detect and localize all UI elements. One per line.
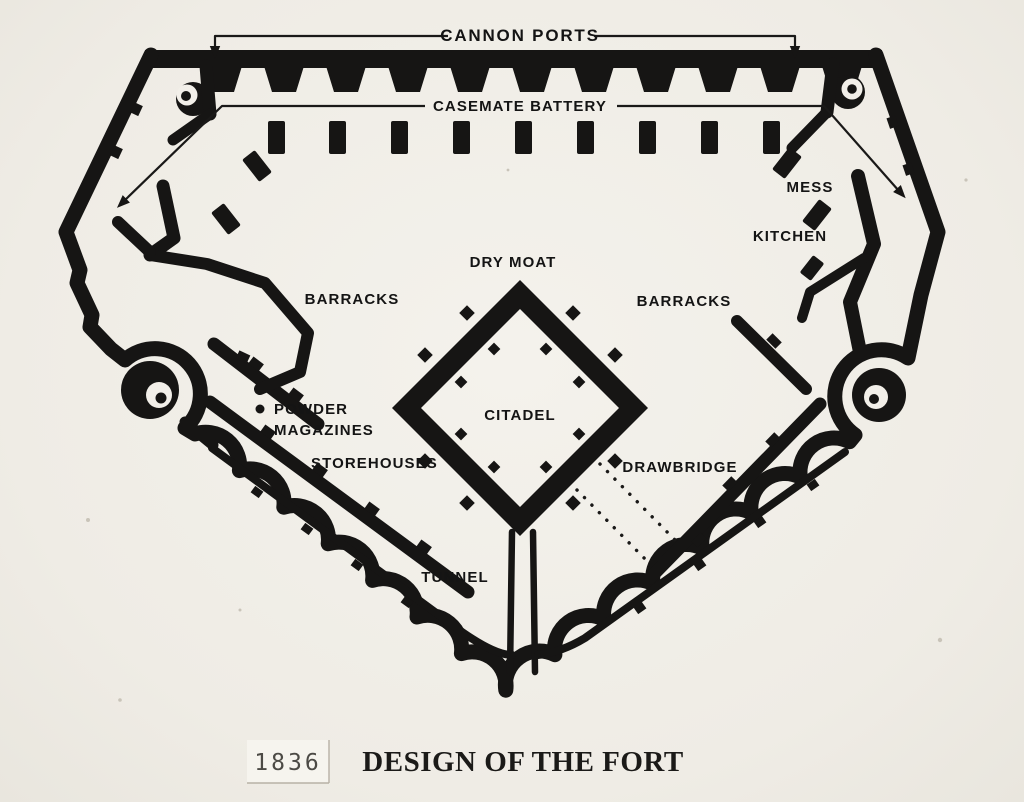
label-mess: MESS bbox=[787, 179, 834, 196]
label-powder-magazines-line1: POWDER bbox=[274, 401, 348, 418]
inner-wall-east bbox=[538, 452, 845, 655]
casemate-pier bbox=[639, 121, 656, 154]
fort-plan-drawing: CANNON PORTS CASEMATE BATTERY MESS KITCH… bbox=[0, 0, 1024, 802]
gun-position-dot bbox=[181, 91, 191, 101]
casemate-pier bbox=[453, 121, 470, 154]
casemate-pier bbox=[701, 121, 718, 154]
caption-title: DESIGN OF THE FORT bbox=[362, 746, 683, 778]
label-barracks-east: BARRACKS bbox=[637, 293, 732, 310]
casemate-pier bbox=[800, 255, 825, 281]
casemate-pier bbox=[802, 199, 832, 231]
label-storehouses: STOREHOUSES bbox=[311, 455, 438, 472]
casemate-pier bbox=[242, 150, 272, 182]
fort-diagram-page: CANNON PORTS CASEMATE BATTERY MESS KITCH… bbox=[0, 0, 1024, 802]
northwest-corner-works bbox=[173, 66, 210, 140]
casemate-pier bbox=[577, 121, 594, 154]
caption: 1836 DESIGN OF THE FORT bbox=[247, 740, 684, 783]
label-citadel: CITADEL bbox=[484, 407, 556, 424]
north-rampart-wall bbox=[145, 50, 882, 68]
caption-year: 1836 bbox=[254, 750, 321, 776]
label-drawbridge: DRAWBRIDGE bbox=[622, 459, 737, 476]
label-barracks-west: BARRACKS bbox=[305, 291, 400, 308]
tunnel-wall-right bbox=[533, 532, 535, 672]
label-casemate-battery: CASEMATE BATTERY bbox=[433, 98, 607, 115]
west-bastion bbox=[121, 361, 179, 419]
casemate-pier bbox=[763, 121, 780, 154]
gun-position-dot bbox=[847, 84, 857, 94]
gun-position-dot bbox=[156, 393, 167, 404]
cannon-port-teeth bbox=[202, 66, 862, 92]
label-dry-moat: DRY MOAT bbox=[470, 254, 557, 271]
drawbridge-dotted-path bbox=[577, 490, 650, 564]
gun-position-dot bbox=[869, 394, 879, 404]
casemate-pier bbox=[211, 203, 241, 235]
casemate-pier bbox=[515, 121, 532, 154]
outer-enceinte-wall bbox=[66, 55, 938, 690]
label-powder-magazines-line2: MAGAZINES bbox=[274, 422, 374, 439]
label-cannon-ports: CANNON PORTS bbox=[440, 26, 600, 45]
powder-magazines-bullet bbox=[256, 405, 265, 414]
fort-walls bbox=[66, 50, 938, 690]
casemate-pier bbox=[329, 121, 346, 154]
label-tunnel: TUNNEL bbox=[421, 569, 488, 586]
casemate-pier bbox=[268, 121, 285, 154]
label-kitchen: KITCHEN bbox=[753, 228, 827, 245]
casemate-pier bbox=[391, 121, 408, 154]
east-bastion bbox=[852, 368, 906, 422]
